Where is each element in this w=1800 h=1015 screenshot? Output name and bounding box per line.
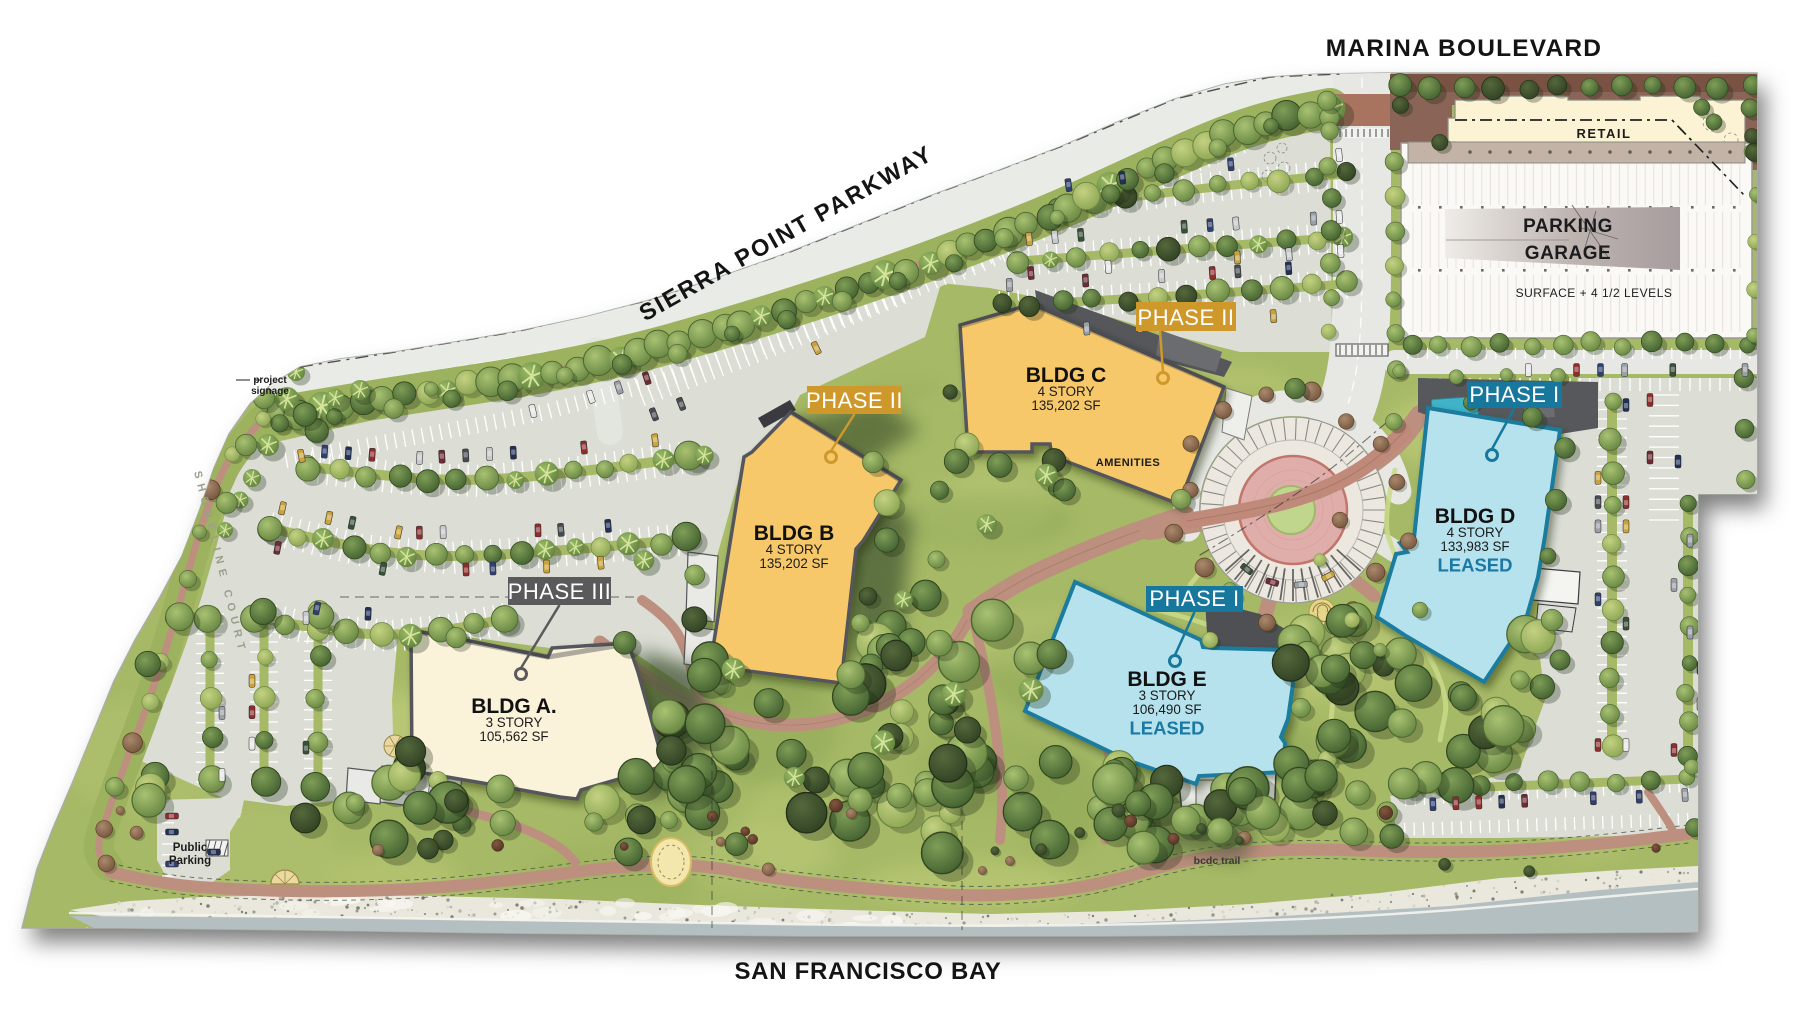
- svg-text:bcdc trail: bcdc trail: [1194, 855, 1241, 867]
- svg-text:106,490 SF: 106,490 SF: [1132, 702, 1201, 717]
- svg-text:135,202 SF: 135,202 SF: [1031, 398, 1100, 413]
- svg-text:PHASE I: PHASE I: [1469, 382, 1559, 407]
- svg-text:SAN FRANCISCO BAY: SAN FRANCISCO BAY: [734, 958, 1001, 985]
- svg-text:4 STORY: 4 STORY: [1038, 384, 1095, 399]
- svg-text:MARINA BOULEVARD: MARINA BOULEVARD: [1326, 35, 1602, 62]
- svg-text:PHASE I: PHASE I: [1149, 586, 1239, 611]
- svg-text:RETAIL: RETAIL: [1577, 126, 1632, 141]
- svg-text:LEASED: LEASED: [1129, 718, 1204, 739]
- svg-text:AMENITIES: AMENITIES: [1096, 457, 1160, 469]
- svg-text:Public: Public: [173, 842, 208, 854]
- svg-text:3 STORY: 3 STORY: [1139, 688, 1196, 703]
- svg-text:PHASE II: PHASE II: [806, 388, 903, 413]
- svg-text:135,202 SF: 135,202 SF: [759, 556, 828, 571]
- svg-text:133,983 SF: 133,983 SF: [1440, 539, 1509, 554]
- svg-text:Parking: Parking: [169, 855, 211, 867]
- svg-text:PHASE III: PHASE III: [508, 579, 612, 604]
- svg-text:LEASED: LEASED: [1437, 555, 1512, 576]
- svg-text:4 STORY: 4 STORY: [766, 542, 823, 557]
- svg-text:PHASE II: PHASE II: [1138, 305, 1235, 330]
- svg-text:SURFACE + 4 1/2 LEVELS: SURFACE + 4 1/2 LEVELS: [1516, 286, 1673, 300]
- svg-text:signage: signage: [251, 386, 289, 397]
- svg-text:GARAGE: GARAGE: [1525, 243, 1611, 264]
- svg-text:3 STORY: 3 STORY: [486, 715, 543, 730]
- svg-text:PARKING: PARKING: [1523, 216, 1613, 237]
- svg-text:4 STORY: 4 STORY: [1447, 525, 1504, 540]
- svg-text:105,562 SF: 105,562 SF: [479, 729, 548, 744]
